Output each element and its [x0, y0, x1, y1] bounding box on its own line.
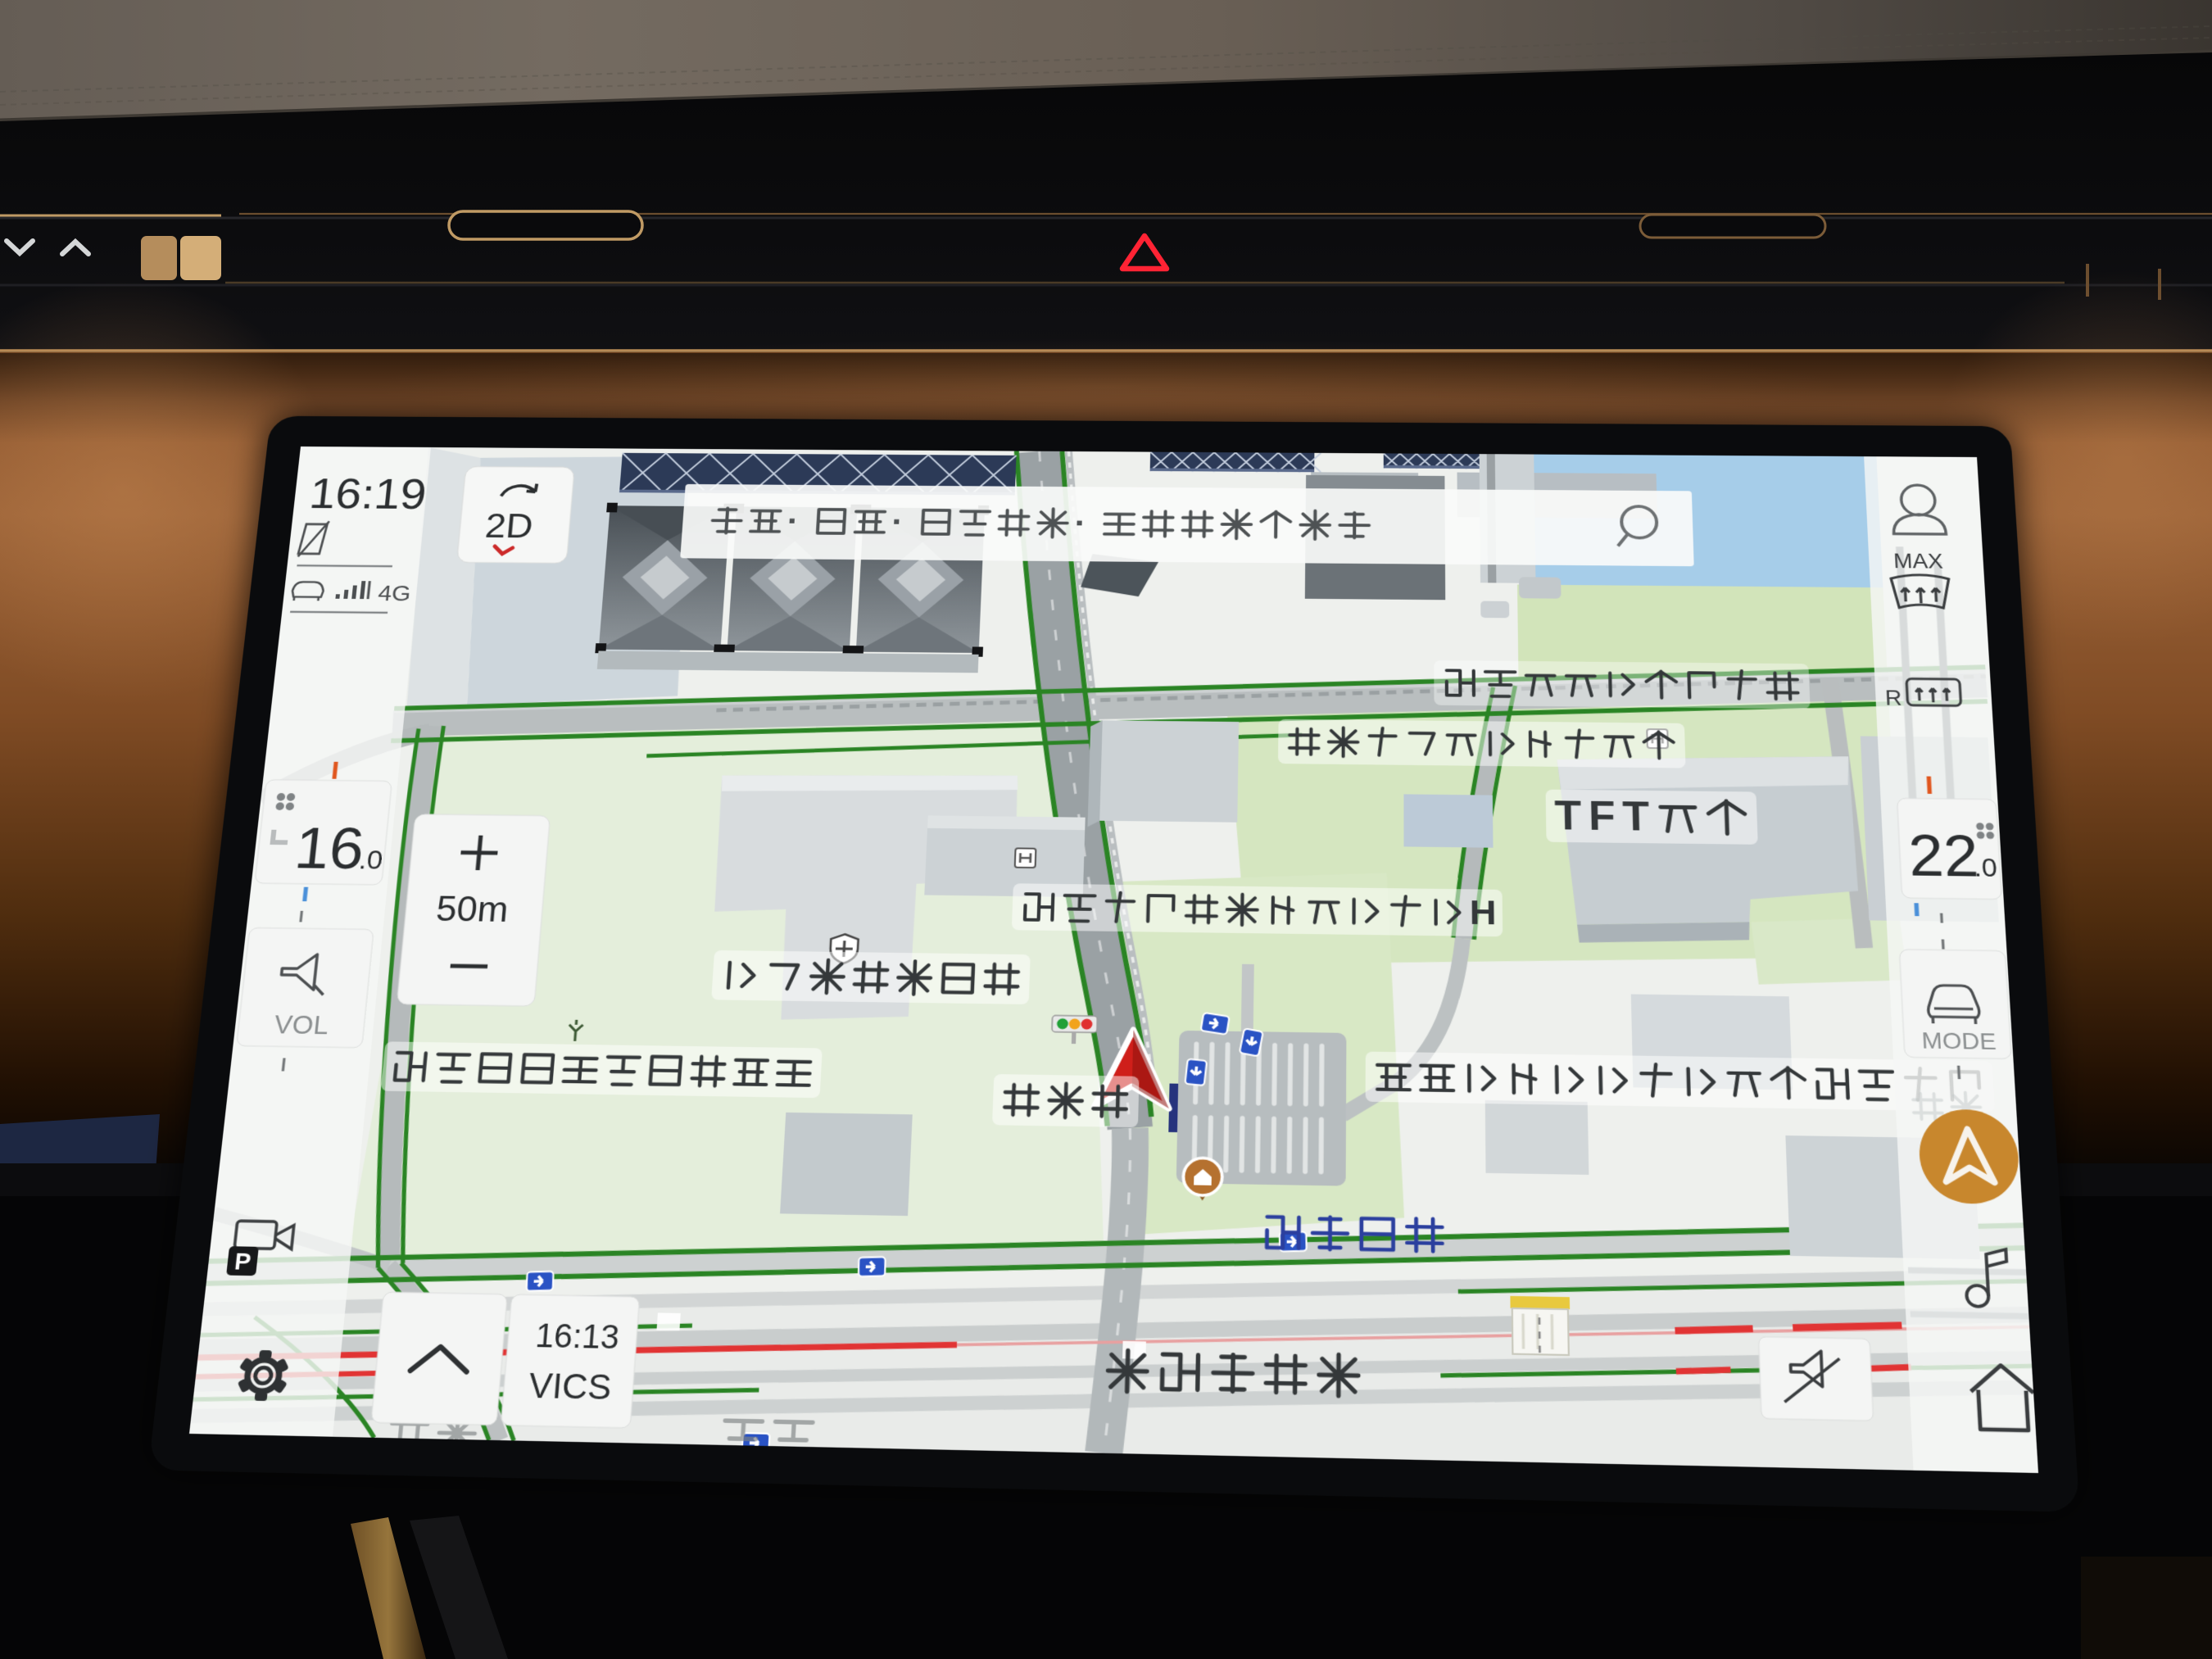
svg-text:·: ·: [1074, 506, 1087, 542]
svg-text:2D: 2D: [483, 506, 534, 545]
svg-text:T: T: [1622, 793, 1650, 839]
svg-text:P: P: [233, 1249, 252, 1275]
svg-text:T: T: [1554, 792, 1582, 838]
svg-text:4G: 4G: [377, 580, 412, 605]
svg-text:VOL: VOL: [273, 1011, 330, 1040]
svg-text:·: ·: [891, 505, 904, 540]
svg-text:.0: .0: [357, 845, 384, 875]
svg-text:H: H: [1470, 894, 1497, 932]
svg-text:VICS: VICS: [528, 1366, 613, 1407]
svg-text:16:13: 16:13: [534, 1318, 620, 1356]
svg-text:F: F: [1588, 793, 1616, 839]
svg-text:22: 22: [1907, 823, 1981, 889]
svg-text:16:19: 16:19: [307, 470, 428, 519]
svg-text:MAX: MAX: [1893, 551, 1944, 573]
svg-text:50m: 50m: [434, 890, 510, 929]
svg-text:R: R: [1884, 687, 1902, 710]
svg-text:MODE: MODE: [1921, 1028, 1997, 1055]
svg-text:16: 16: [292, 816, 367, 882]
svg-text:.0: .0: [1973, 854, 1998, 882]
svg-text:·: ·: [786, 504, 800, 539]
